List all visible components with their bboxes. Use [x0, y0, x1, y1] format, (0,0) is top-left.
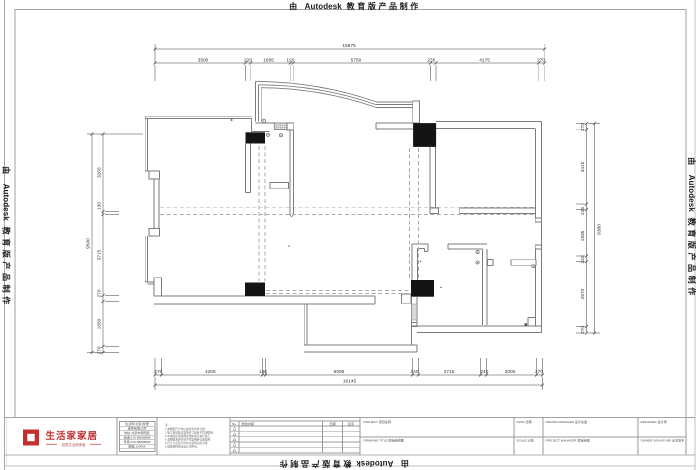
svg-text:电话:010-88888888: 电话:010-88888888 — [123, 435, 150, 440]
svg-text:270: 270 — [580, 123, 586, 131]
svg-text:地址:北京市朝阳区: 地址:北京市朝阳区 — [124, 430, 150, 435]
svg-text:270: 270 — [580, 326, 586, 334]
svg-text:16145: 16145 — [343, 379, 357, 385]
svg-text:9380: 9380 — [597, 224, 603, 235]
svg-text:130: 130 — [97, 202, 103, 210]
svg-text:修改内容: 修改内容 — [242, 421, 254, 426]
svg-text:3500: 3500 — [198, 58, 209, 64]
svg-text:1.本图纸尺寸均以毫米为单位计量;: 1.本图纸尺寸均以毫米为单位计量; — [165, 427, 206, 431]
svg-text:3265: 3265 — [97, 167, 103, 178]
svg-text:240: 240 — [580, 255, 586, 263]
svg-text:270: 270 — [535, 369, 543, 375]
svg-text:OWNER SIGNATURE 业主签字: OWNER SIGNATURE 业主签字 — [641, 438, 685, 443]
svg-text:270: 270 — [97, 289, 103, 297]
svg-text:2715: 2715 — [444, 369, 455, 375]
svg-text:240: 240 — [410, 369, 418, 375]
svg-text:270: 270 — [154, 369, 162, 375]
svg-text:No.: No. — [232, 422, 237, 426]
svg-text:270: 270 — [97, 346, 103, 354]
svg-text:2000: 2000 — [505, 369, 516, 375]
svg-text:由 Autodesk 教育版产品制作: 由 Autodesk 教育版产品制作 — [687, 157, 697, 299]
svg-text:签字: 签字 — [348, 421, 354, 426]
svg-text:9500: 9500 — [86, 238, 92, 249]
svg-text:DESIGN MANAGER 设计总监: DESIGN MANAGER 设计总监 — [546, 419, 588, 424]
svg-text:DRAWING TITLE 原始结构图: DRAWING TITLE 原始结构图 — [364, 438, 404, 443]
svg-text:130: 130 — [259, 369, 267, 375]
svg-text:240: 240 — [480, 369, 488, 375]
svg-text:4175: 4175 — [479, 58, 490, 64]
svg-text:270: 270 — [537, 58, 545, 64]
svg-text:2.施工前请核对现场尺寸如有不符请联系;: 2.施工前请核对现场尺寸如有不符请联系; — [165, 431, 214, 435]
svg-text:6.最终解释权归设计方所有。: 6.最终解释权归设计方所有。 — [165, 445, 200, 449]
svg-text:3715: 3715 — [97, 249, 103, 260]
svg-text:DESIGNER 设计师: DESIGNER 设计师 — [641, 419, 667, 424]
svg-text:5750: 5750 — [351, 58, 362, 64]
svg-text:传真:010-88888888: 传真:010-88888888 — [123, 439, 150, 444]
svg-text:SCALE 比例: SCALE 比例 — [517, 438, 534, 443]
svg-text:由 Autodesk 教育版产品制作: 由 Autodesk 教育版产品制作 — [277, 459, 409, 469]
svg-text:1650: 1650 — [97, 318, 103, 329]
svg-text:120: 120 — [286, 58, 294, 64]
svg-text:4.本图纸未经许可不得复制转让或使用;: 4.本图纸未经许可不得复制转让或使用; — [165, 438, 211, 442]
svg-text:235: 235 — [427, 58, 435, 64]
svg-text:15875: 15875 — [342, 43, 356, 49]
svg-text:生活家家居: 生活家家居 — [46, 430, 99, 442]
svg-text:1605: 1605 — [263, 58, 274, 64]
svg-text:6095: 6095 — [334, 369, 345, 375]
svg-text:5.尺寸与实际不符时以现场实际为准;: 5.尺寸与实际不符时以现场实际为准; — [165, 441, 209, 445]
svg-text:由 Autodesk 教育版产品制作: 由 Autodesk 教育版产品制作 — [2, 166, 12, 308]
svg-text:注:: 注: — [165, 423, 169, 427]
svg-text:1935: 1935 — [580, 230, 586, 241]
svg-text:PROJECT MANAGER 项目经理: PROJECT MANAGER 项目经理 — [546, 438, 590, 443]
svg-text:3.水电改造需按国家相关规范进行施工;: 3.水电改造需按国家相关规范进行施工; — [165, 434, 211, 438]
svg-text:由 Autodesk 教育版产品制作: 由 Autodesk 教育版产品制作 — [289, 1, 421, 11]
svg-text:DATE 日期: DATE 日期 — [517, 419, 532, 424]
svg-text:3415: 3415 — [580, 161, 586, 172]
svg-text:PROJECT 项目名称: PROJECT 项目名称 — [364, 419, 392, 424]
svg-text:品质生活缔造者: 品质生活缔造者 — [62, 442, 86, 447]
svg-text:日期: 日期 — [329, 421, 335, 426]
svg-text:装饰有限公司: 装饰有限公司 — [128, 426, 147, 431]
svg-text:4205: 4205 — [205, 369, 216, 375]
svg-text:2670: 2670 — [580, 288, 586, 299]
svg-text:220: 220 — [244, 58, 252, 64]
svg-text:邮编:100000: 邮编:100000 — [128, 444, 146, 449]
svg-text:245: 245 — [580, 207, 586, 215]
svg-text:生活家(北京)家居: 生活家(北京)家居 — [125, 421, 149, 426]
